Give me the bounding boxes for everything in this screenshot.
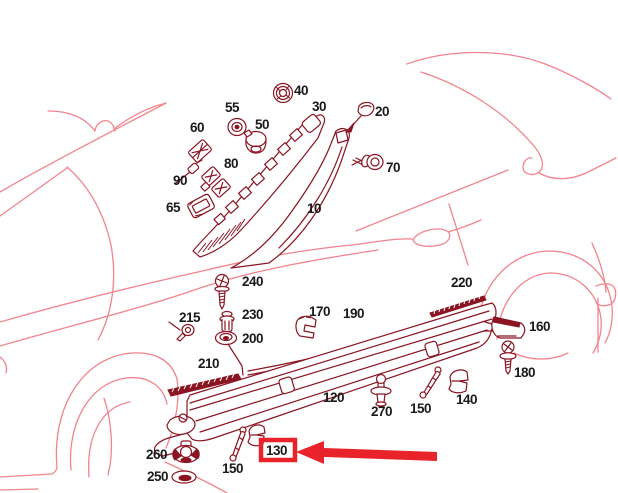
part-label-130: 130 [266, 443, 287, 458]
part-label-55: 55 [225, 100, 240, 115]
part-40-grommet [274, 84, 293, 103]
part-label-180: 180 [514, 365, 535, 380]
part-120-rocker-panel [154, 303, 496, 456]
parts-diagram: 40 55 50 60 30 20 70 80 90 65 10 240 230… [0, 0, 618, 493]
part-label-220: 220 [451, 275, 472, 290]
part-label-90: 90 [173, 173, 187, 188]
part-label-230: 230 [242, 307, 263, 322]
part-label-215: 215 [179, 310, 201, 325]
part-label-170: 170 [309, 304, 330, 319]
part-label-50: 50 [255, 117, 269, 132]
part-170-bracket [296, 316, 316, 338]
part-label-160: 160 [529, 319, 550, 334]
part-label-140: 140 [456, 392, 477, 407]
part-label-120: 120 [323, 390, 344, 405]
part-label-60: 60 [190, 120, 204, 135]
part-label-250: 250 [147, 469, 168, 484]
part-label-150-left: 150 [222, 461, 243, 476]
part-label-240: 240 [242, 274, 263, 289]
part-20-cap [346, 102, 374, 132]
part-label-65: 65 [166, 200, 181, 215]
part-label-10: 10 [307, 201, 321, 216]
part-200-grommet [216, 332, 244, 376]
highlight-arrow [296, 441, 437, 464]
part-250-washer [172, 471, 196, 483]
part-260-grommet [173, 441, 200, 463]
part-55-washer [228, 119, 246, 136]
part-label-190: 190 [343, 306, 364, 321]
part-label-70: 70 [386, 160, 400, 175]
part-150-rod-right [420, 367, 441, 398]
part-label-210: 210 [198, 356, 219, 371]
part-label-40: 40 [294, 83, 308, 98]
part-label-30: 30 [312, 99, 326, 114]
part-label-260: 260 [146, 447, 167, 462]
part-230-clip [220, 312, 234, 333]
part-label-80: 80 [224, 156, 238, 171]
part-65-clip [187, 193, 216, 218]
part-50-cap [244, 130, 266, 153]
part-60-clip [188, 139, 212, 163]
part-label-20: 20 [375, 104, 389, 119]
door-handle-outline [413, 229, 450, 246]
part-240-screw [215, 275, 229, 310]
diagram-canvas: 40 55 50 60 30 20 70 80 90 65 10 240 230… [0, 0, 618, 493]
part-label-200: 200 [242, 331, 263, 346]
part-label-270: 270 [371, 404, 392, 419]
part-70-screw [352, 154, 383, 170]
part-140-clip [449, 370, 468, 393]
leader-arrowhead [346, 123, 354, 132]
part-label-150-right: 150 [410, 401, 431, 416]
